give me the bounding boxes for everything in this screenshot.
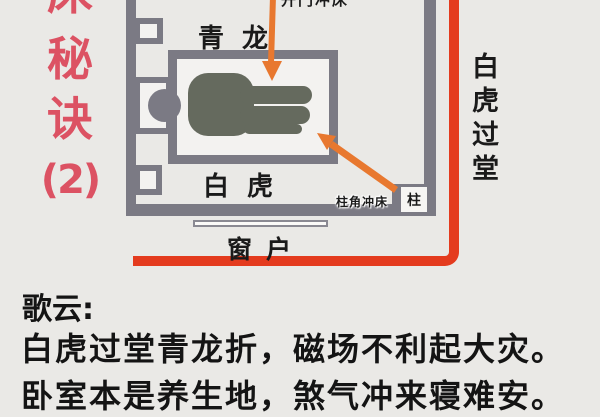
label-window: 窗户: [227, 230, 305, 266]
label-pillar-corner-hits-bed: 柱角冲床: [336, 193, 388, 210]
verse-heading: 歌云:: [22, 284, 94, 328]
top-label-clipped: 开门冲床: [281, 0, 355, 9]
verse-line-2: 卧室本是养生地，煞气冲来寝难安。: [21, 371, 565, 417]
label-white-tiger: 白虎: [203, 166, 291, 203]
pillar-arrow-icon: [317, 133, 396, 190]
label-white-tiger-passes-hall: 白虎过堂: [465, 52, 498, 188]
verse-line-1: 白虎过堂青龙折，磁场不利起大灾。: [21, 324, 565, 370]
label-azure-dragon: 青龙: [198, 18, 286, 55]
person-silhouette: [188, 73, 312, 136]
